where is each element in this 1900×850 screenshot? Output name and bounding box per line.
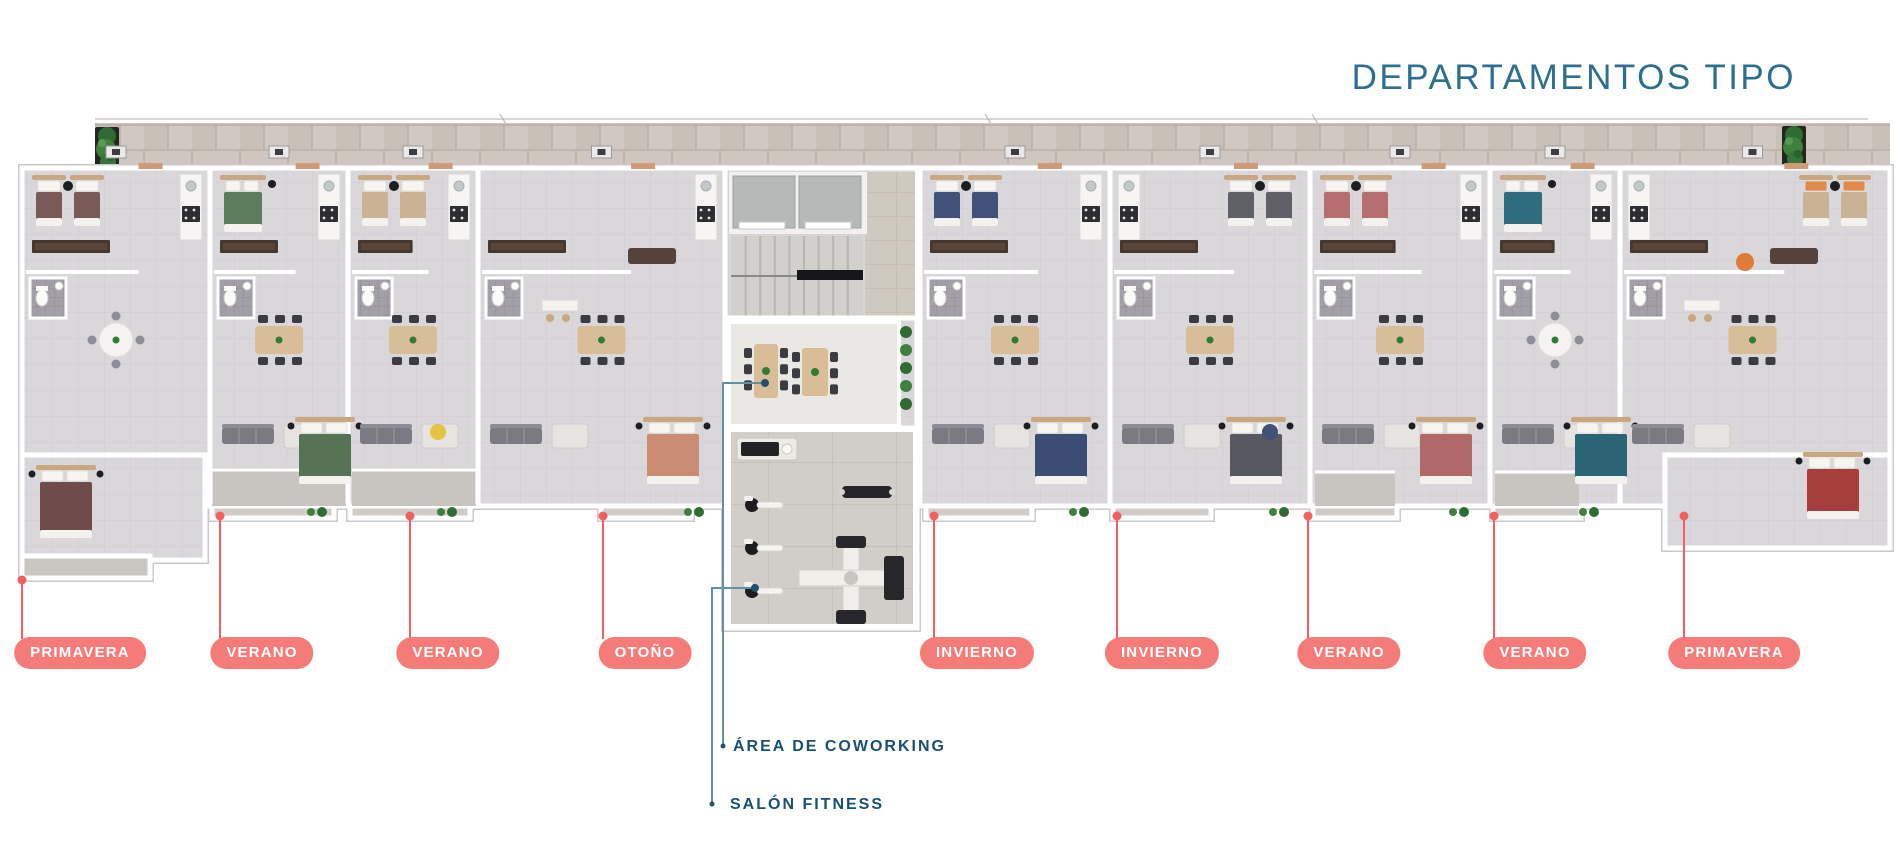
leader-line bbox=[1113, 512, 1122, 640]
unit-type-pill: PRIMAVERA bbox=[1668, 637, 1800, 669]
walkway bbox=[95, 123, 1890, 168]
leader-line bbox=[930, 512, 939, 640]
unit-type-pill: PRIMAVERA bbox=[14, 637, 146, 669]
unit-type-pill: VERANO bbox=[1483, 637, 1586, 669]
hedge-icon bbox=[1782, 126, 1806, 168]
coworking-room bbox=[729, 322, 912, 426]
page-title: DEPARTAMENTOS TIPO bbox=[1352, 58, 1796, 98]
amenity-label: ÁREA DE COWORKING bbox=[733, 738, 946, 756]
unit-type-pill: VERANO bbox=[1297, 637, 1400, 669]
leader-line bbox=[18, 576, 27, 640]
unit-type-pill: INVIERNO bbox=[920, 637, 1034, 669]
amenity-label: SALÓN FITNESS bbox=[730, 796, 884, 814]
brochure-page: DEPARTAMENTOS TIPO PRIMAVERAVERANOVERANO… bbox=[0, 0, 1900, 850]
leader-line bbox=[1490, 512, 1499, 640]
unit-type-pill: INVIERNO bbox=[1105, 637, 1219, 669]
unit-type-pill: VERANO bbox=[396, 637, 499, 669]
elevator-icon bbox=[729, 172, 867, 234]
gym-room bbox=[729, 430, 915, 626]
leader-line bbox=[216, 512, 225, 640]
common-core bbox=[727, 172, 915, 626]
unit-type-pill: VERANO bbox=[210, 637, 313, 669]
unit-type-pill: OTOÑO bbox=[599, 637, 692, 669]
leader-line bbox=[1304, 512, 1313, 640]
lobby-floor bbox=[865, 172, 915, 316]
leader-line bbox=[599, 512, 608, 640]
stairs-icon bbox=[731, 236, 863, 316]
floor-plan-rendering bbox=[0, 0, 1900, 850]
leader-line bbox=[406, 512, 415, 640]
